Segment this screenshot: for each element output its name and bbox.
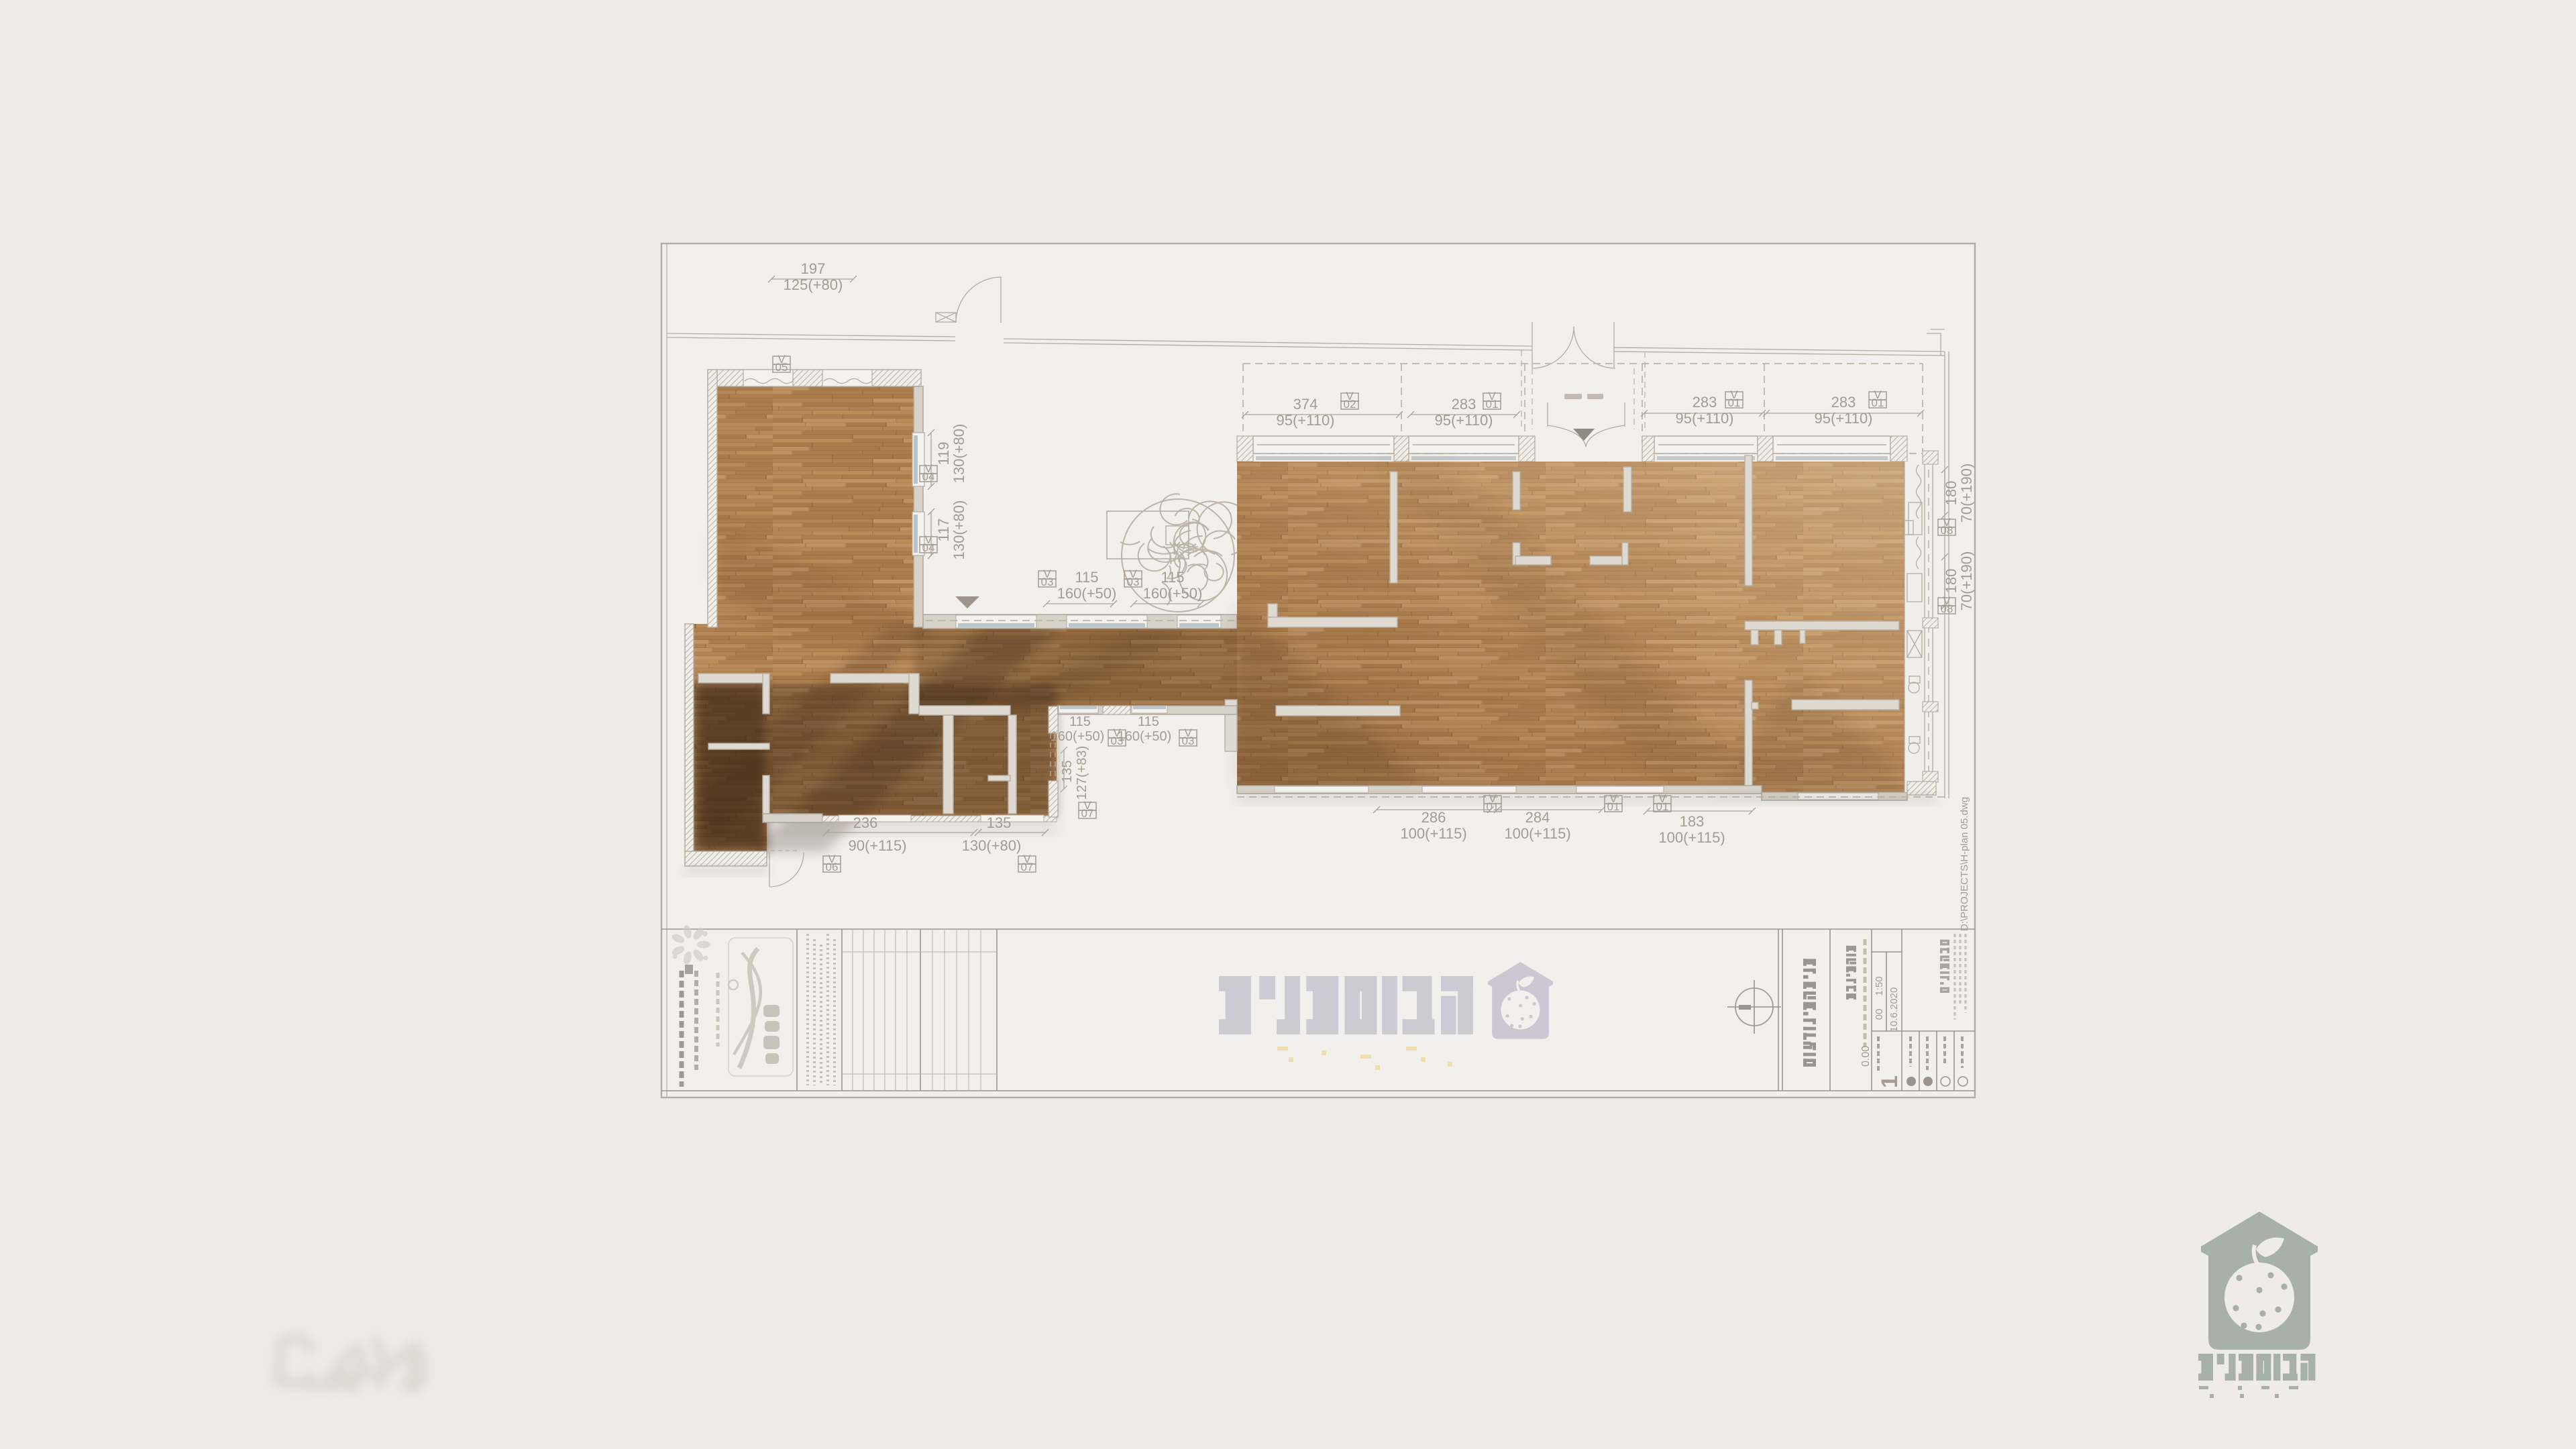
svg-text:01: 01 [1872, 396, 1884, 409]
svg-text:05: 05 [775, 361, 788, 374]
svg-text:236: 236 [853, 814, 878, 831]
svg-text:115: 115 [1161, 569, 1184, 586]
svg-text:07: 07 [1021, 861, 1034, 873]
svg-text:03: 03 [1127, 576, 1140, 588]
svg-text:01: 01 [1486, 398, 1499, 411]
svg-text:1: 1 [1877, 1075, 1902, 1088]
svg-text:01: 01 [1487, 800, 1499, 813]
svg-text:03: 03 [1182, 735, 1195, 747]
svg-text:95(+110): 95(+110) [1276, 412, 1334, 429]
svg-text:100(+115): 100(+115) [1658, 829, 1725, 846]
svg-text:286: 286 [1421, 809, 1446, 826]
svg-text:70(+190): 70(+190) [1958, 551, 1975, 611]
svg-text:283: 283 [1831, 394, 1856, 411]
svg-text:95(+110): 95(+110) [1814, 410, 1872, 427]
svg-text:0.00: 0.00 [1860, 1046, 1872, 1067]
svg-text:374: 374 [1293, 396, 1318, 413]
svg-text:04: 04 [922, 470, 935, 483]
svg-text:125(+80): 125(+80) [784, 276, 843, 293]
svg-text:283: 283 [1452, 396, 1477, 413]
svg-text:00: 00 [1874, 1009, 1885, 1020]
svg-text:08: 08 [1941, 602, 1953, 615]
svg-text:02: 02 [1344, 398, 1356, 411]
svg-text:90(+115): 90(+115) [848, 837, 906, 854]
svg-text:180: 180 [1943, 481, 1960, 506]
svg-text:10.6.2020: 10.6.2020 [1888, 987, 1900, 1032]
svg-text:115: 115 [1069, 714, 1091, 729]
svg-text:283: 283 [1693, 394, 1717, 411]
svg-text:135: 135 [1060, 760, 1075, 782]
svg-text:95(+110): 95(+110) [1434, 412, 1493, 429]
svg-text:08: 08 [1941, 524, 1953, 537]
svg-text:180: 180 [1943, 569, 1960, 594]
svg-text:06: 06 [826, 861, 839, 873]
svg-text:03: 03 [1041, 576, 1054, 588]
svg-text:197: 197 [801, 260, 826, 277]
svg-text:115: 115 [1075, 569, 1098, 586]
svg-text:01: 01 [1728, 396, 1741, 409]
svg-text:70(+190): 70(+190) [1958, 464, 1975, 523]
svg-text:130(+80): 130(+80) [951, 500, 967, 560]
svg-text:183: 183 [1680, 813, 1705, 830]
svg-text:07: 07 [1081, 807, 1094, 820]
svg-text:115: 115 [1138, 714, 1159, 729]
svg-text:01: 01 [1607, 800, 1620, 813]
svg-text:01: 01 [1656, 800, 1669, 813]
svg-text:119: 119 [935, 441, 952, 465]
svg-text:95(+110): 95(+110) [1675, 410, 1733, 427]
svg-text:D:\PROJECTS\H-plan 05.dwg: D:\PROJECTS\H-plan 05.dwg [1959, 797, 1970, 931]
svg-text:100(+115): 100(+115) [1400, 825, 1466, 842]
svg-text:100(+115): 100(+115) [1504, 825, 1570, 842]
svg-text:04: 04 [922, 541, 935, 554]
svg-text:284: 284 [1525, 809, 1550, 826]
svg-text:1:50: 1:50 [1874, 976, 1885, 996]
svg-text:130(+80): 130(+80) [962, 837, 1022, 854]
svg-text:160(+50): 160(+50) [1118, 729, 1172, 744]
svg-text:160(+50): 160(+50) [1057, 585, 1117, 602]
svg-text:160(+50): 160(+50) [1051, 729, 1105, 744]
svg-text:135: 135 [987, 814, 1012, 831]
svg-text:160(+50): 160(+50) [1143, 585, 1203, 602]
svg-text:130(+80): 130(+80) [951, 424, 967, 484]
svg-text:127(+83): 127(+83) [1075, 746, 1089, 800]
